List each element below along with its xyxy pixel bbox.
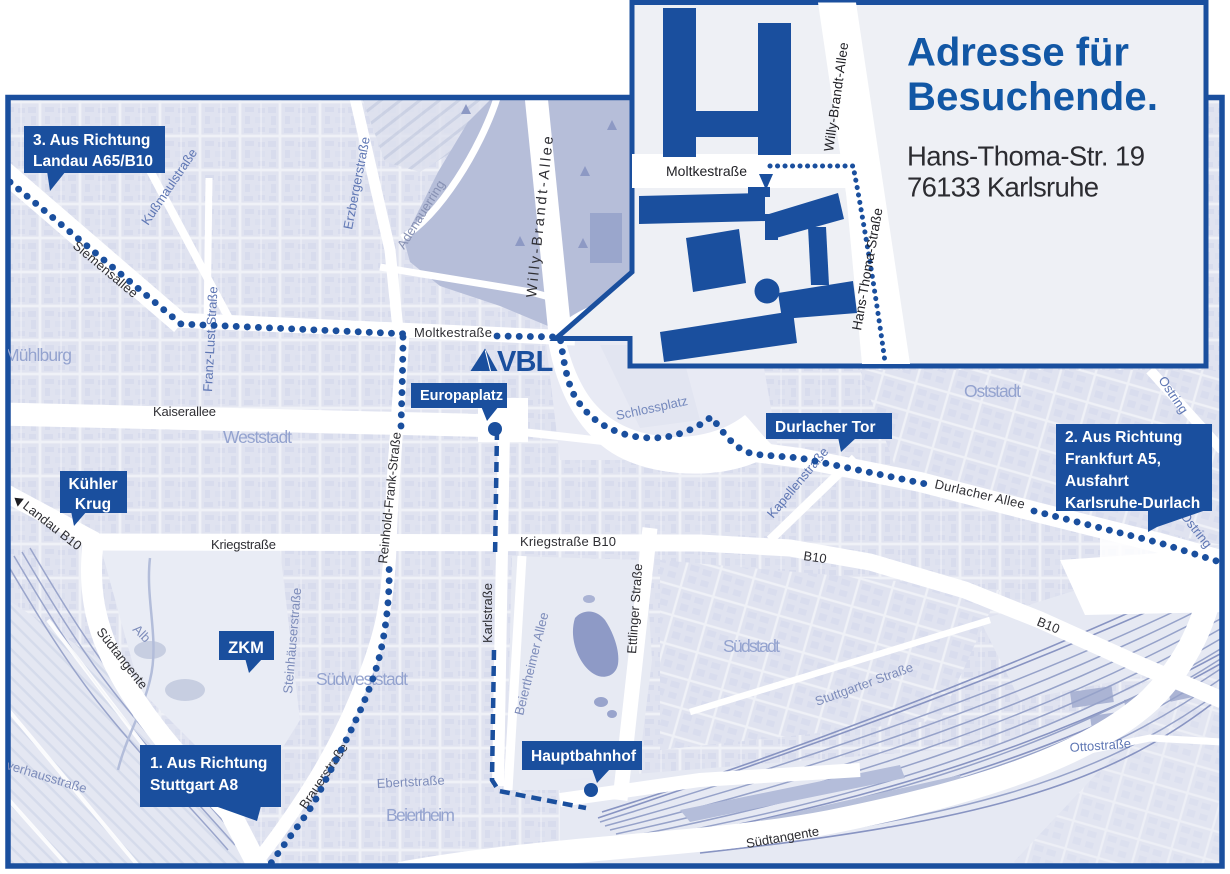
svg-text:Weststadt: Weststadt [223, 427, 292, 447]
svg-text:76133 Karlsruhe: 76133 Karlsruhe [907, 172, 1099, 203]
svg-text:Krug: Krug [75, 496, 111, 513]
svg-text:Frankfurt A5,: Frankfurt A5, [1065, 451, 1161, 468]
svg-text:Kriegstraße B10: Kriegstraße B10 [520, 534, 616, 549]
svg-text:1. Aus Richtung: 1. Aus Richtung [150, 755, 267, 772]
svg-text:Kühler: Kühler [68, 476, 117, 493]
svg-text:2. Aus Richtung: 2. Aus Richtung [1065, 429, 1182, 446]
svg-text:Adresse für: Adresse für [907, 31, 1129, 75]
svg-text:Oststadt: Oststadt [964, 381, 1021, 401]
svg-text:B10: B10 [803, 548, 828, 566]
svg-text:3. Aus Richtung: 3. Aus Richtung [33, 132, 150, 149]
svg-text:Moltkestraße: Moltkestraße [414, 325, 492, 340]
svg-text:Hauptbahnhof: Hauptbahnhof [531, 748, 637, 765]
svg-text:Kriegstraße: Kriegstraße [211, 537, 276, 552]
svg-text:VBL: VBL [497, 346, 553, 378]
svg-text:Durlacher Tor: Durlacher Tor [775, 419, 876, 436]
svg-text:Karlsruhe-Durlach: Karlsruhe-Durlach [1065, 495, 1200, 512]
svg-text:Besuchende.: Besuchende. [907, 75, 1158, 119]
svg-text:Mühlburg: Mühlburg [5, 345, 72, 365]
svg-text:Südstadt: Südstadt [723, 636, 780, 656]
svg-text:Landau A65/B10: Landau A65/B10 [33, 153, 153, 170]
svg-text:Kaiserallee: Kaiserallee [153, 404, 216, 419]
svg-text:Beiertheim: Beiertheim [386, 805, 455, 825]
svg-text:Europaplatz: Europaplatz [420, 388, 503, 404]
svg-text:Karlstraße: Karlstraße [480, 583, 495, 643]
svg-text:ZKM: ZKM [228, 639, 264, 657]
svg-text:Moltkestraße: Moltkestraße [666, 163, 747, 179]
svg-text:Südweststadt: Südweststadt [316, 669, 408, 689]
svg-text:Ausfahrt: Ausfahrt [1065, 473, 1129, 490]
svg-text:Stuttgart A8: Stuttgart A8 [150, 777, 238, 794]
svg-text:Hans-Thoma-Str. 19: Hans-Thoma-Str. 19 [907, 141, 1145, 172]
